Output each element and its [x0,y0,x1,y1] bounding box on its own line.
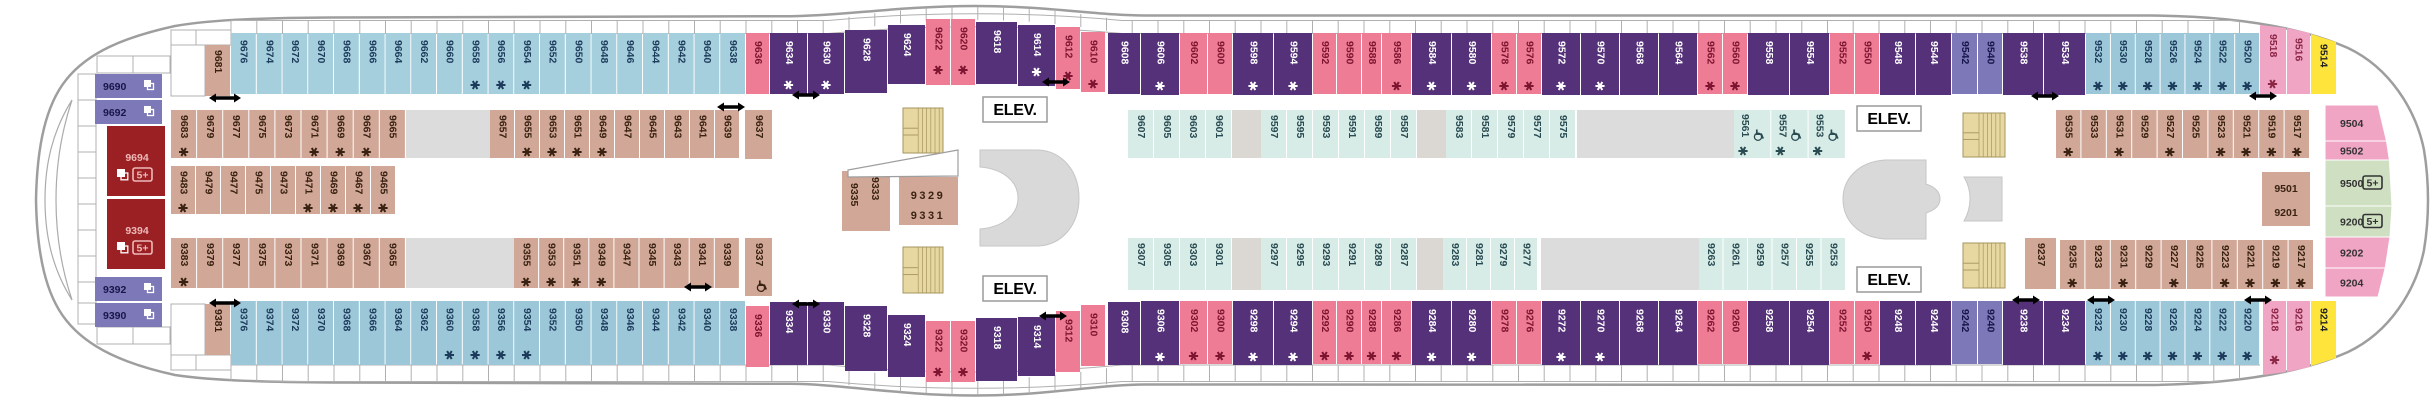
svg-text:9261: 9261 [1730,243,1742,267]
svg-text:9557: 9557 [1776,114,1788,138]
svg-text:9364: 9364 [392,308,404,332]
svg-text:9307: 9307 [1135,243,1147,267]
svg-text:9552: 9552 [1836,41,1848,65]
svg-text:9610: 9610 [1087,40,1099,64]
svg-text:9578: 9578 [1498,41,1510,65]
svg-text:9665: 9665 [387,115,399,139]
svg-text:9303: 9303 [1187,243,1199,267]
svg-text:9253: 9253 [1828,243,1840,267]
svg-text:9642: 9642 [675,40,687,64]
svg-text:9232: 9232 [2092,308,2104,332]
svg-text:9532: 9532 [2092,40,2104,64]
svg-text:9586: 9586 [1391,41,1403,65]
svg-text:9234: 9234 [2059,309,2071,333]
svg-text:9667: 9667 [361,115,373,139]
svg-text:9600: 9600 [1214,41,1226,65]
svg-text:9548: 9548 [1892,41,1904,65]
svg-text:9222: 9222 [2217,308,2229,332]
svg-text:9675: 9675 [256,115,268,139]
svg-text:9660: 9660 [444,40,456,64]
svg-text:9306: 9306 [1154,309,1166,333]
svg-text:9598: 9598 [1247,41,1259,65]
svg-text:9564: 9564 [1672,41,1684,65]
svg-text:9606: 9606 [1154,41,1166,65]
svg-text:9672: 9672 [289,40,301,64]
svg-text:9602: 9602 [1188,41,1200,65]
svg-text:9592: 9592 [1319,41,1331,65]
svg-text:9330: 9330 [820,310,832,334]
svg-text:9244: 9244 [1928,309,1940,333]
svg-text:9588: 9588 [1366,41,1378,65]
svg-text:9345: 9345 [646,243,658,267]
svg-text:9538: 9538 [2017,41,2029,65]
svg-text:9394: 9394 [125,225,149,237]
svg-text:9310: 9310 [1087,313,1099,337]
svg-text:9367: 9367 [361,243,373,267]
svg-text:9372: 9372 [289,308,301,332]
svg-text:9584: 9584 [1426,41,1438,65]
svg-text:9290: 9290 [1343,309,1355,333]
svg-text:9679: 9679 [204,115,216,139]
svg-text:9542: 9542 [1959,41,1971,65]
svg-text:9254: 9254 [1804,309,1816,333]
svg-text:9643: 9643 [671,115,683,139]
svg-text:9219: 9219 [2270,245,2282,269]
svg-text:9467: 9467 [352,171,364,195]
svg-text:9230: 9230 [2117,308,2129,332]
svg-text:9501: 9501 [2274,183,2298,195]
svg-text:9295: 9295 [1294,243,1306,267]
svg-text:9334: 9334 [783,310,795,334]
svg-text:9374: 9374 [263,308,275,332]
svg-text:9286: 9286 [1391,309,1403,333]
svg-text:9644: 9644 [650,40,662,64]
svg-text:9204: 9204 [2340,278,2364,290]
svg-text:9580: 9580 [1466,41,1478,65]
svg-text:9568: 9568 [1633,41,1645,65]
svg-text:9628: 9628 [860,38,872,62]
svg-text:9225: 9225 [2194,245,2206,269]
svg-text:9589: 9589 [1372,115,1384,139]
svg-text:9662: 9662 [418,40,430,64]
svg-text:9504: 9504 [2340,118,2364,130]
svg-text:9276: 9276 [1523,309,1535,333]
svg-text:9235: 9235 [2067,245,2079,269]
svg-text:9524: 9524 [2192,40,2204,64]
svg-text:9517: 9517 [2291,115,2303,139]
svg-text:9646: 9646 [624,40,636,64]
svg-text:9653: 9653 [546,115,558,139]
svg-text:9250: 9250 [1861,309,1873,333]
svg-text:9465: 9465 [377,171,389,195]
svg-text:9298: 9298 [1247,309,1259,333]
svg-text:9341: 9341 [696,243,708,267]
svg-text:9383: 9383 [178,243,190,267]
svg-text:9554: 9554 [1804,41,1816,65]
svg-text:ELEV.: ELEV. [1867,272,1910,289]
svg-text:9346: 9346 [624,308,636,332]
svg-text:9649: 9649 [596,115,608,139]
svg-text:9214: 9214 [2317,308,2329,332]
svg-text:9362: 9362 [418,308,430,332]
svg-text:9522: 9522 [2217,40,2229,64]
svg-text:9526: 9526 [2167,40,2179,64]
svg-text:9502: 9502 [2340,146,2364,158]
svg-text:9560: 9560 [1729,41,1741,65]
svg-text:9301: 9301 [1213,243,1225,267]
svg-text:9638: 9638 [727,40,739,64]
svg-text:9620: 9620 [957,27,969,51]
svg-text:9279: 9279 [1497,243,1509,267]
svg-text:9228: 9228 [2142,308,2154,332]
svg-text:9368: 9368 [341,308,353,332]
svg-text:5+: 5+ [137,243,149,255]
svg-text:9514: 9514 [2317,44,2329,68]
svg-text:9272: 9272 [1555,309,1567,333]
svg-text:9530: 9530 [2117,40,2129,64]
svg-text:9650: 9650 [572,40,584,64]
svg-text:9641: 9641 [696,115,708,139]
svg-text:9354: 9354 [521,308,533,332]
svg-text:9262: 9262 [1704,309,1716,333]
svg-text:9473: 9473 [277,171,289,195]
svg-text:9674: 9674 [263,40,275,64]
svg-text:9591: 9591 [1346,115,1358,139]
svg-text:9634: 9634 [783,41,795,65]
svg-text:5+: 5+ [2367,178,2379,190]
svg-text:9657: 9657 [496,115,508,139]
svg-text:9335: 9335 [848,183,860,207]
svg-text:9280: 9280 [1466,309,1478,333]
svg-text:9281: 9281 [1473,243,1485,267]
svg-text:9226: 9226 [2167,308,2179,332]
svg-text:ELEV.: ELEV. [1867,111,1910,128]
svg-text:9349: 9349 [596,243,608,267]
svg-text:9656: 9656 [495,40,507,64]
svg-text:9670: 9670 [315,40,327,64]
svg-text:9562: 9562 [1704,41,1716,65]
svg-text:9500: 9500 [2340,178,2364,190]
svg-text:9238: 9238 [2017,309,2029,333]
svg-text:9561: 9561 [1739,114,1751,138]
svg-text:9336: 9336 [752,314,764,338]
svg-text:9483: 9483 [177,171,189,195]
svg-text:9651: 9651 [571,115,583,139]
svg-text:9577: 9577 [1531,115,1543,139]
svg-text:9520: 9520 [2241,40,2253,64]
svg-text:9320: 9320 [957,329,969,353]
svg-text:9666: 9666 [366,40,378,64]
svg-text:9590: 9590 [1343,41,1355,65]
svg-text:9340: 9340 [701,308,713,332]
svg-text:9371: 9371 [308,243,320,267]
svg-text:9637: 9637 [753,115,765,139]
svg-text:9358: 9358 [469,308,481,332]
svg-text:9692: 9692 [103,107,127,119]
svg-text:9690: 9690 [103,81,127,93]
svg-text:9297: 9297 [1268,243,1280,267]
svg-text:9257: 9257 [1779,243,1791,267]
svg-text:9525: 9525 [2190,115,2202,139]
svg-text:9603: 9603 [1187,115,1199,139]
svg-text:9294: 9294 [1287,309,1299,333]
svg-text:9270: 9270 [1594,309,1606,333]
svg-text:9218: 9218 [2268,308,2280,332]
svg-text:9390: 9390 [103,310,127,322]
svg-text:9583: 9583 [1453,115,1465,139]
svg-text:9318: 9318 [991,326,1003,350]
svg-text:9260: 9260 [1729,309,1741,333]
svg-text:9677: 9677 [230,115,242,139]
svg-text:9614: 9614 [1031,33,1043,57]
svg-text:9202: 9202 [2340,248,2364,260]
svg-text:9231: 9231 [2117,245,2129,269]
svg-text:9255: 9255 [1803,243,1815,267]
svg-text:9654: 9654 [521,40,533,64]
svg-text:9308: 9308 [1118,310,1130,334]
svg-text:9518: 9518 [2267,34,2279,58]
svg-text:9373: 9373 [282,243,294,267]
svg-text:9353: 9353 [545,243,557,267]
svg-text:9587: 9587 [1398,115,1410,139]
svg-text:9344: 9344 [650,308,662,332]
svg-text:9519: 9519 [2266,115,2278,139]
svg-text:ELEV.: ELEV. [993,102,1036,119]
svg-text:9673: 9673 [282,115,294,139]
svg-text:9237: 9237 [2035,243,2047,267]
svg-text:9595: 9595 [1294,115,1306,139]
svg-text:9535: 9535 [2063,115,2075,139]
svg-text:9572: 9572 [1555,41,1567,65]
svg-text:9664: 9664 [392,40,404,64]
svg-text:9312: 9312 [1062,319,1074,343]
svg-text:9283: 9283 [1449,243,1461,267]
svg-text:9570: 9570 [1594,41,1606,65]
svg-text:5+: 5+ [137,170,149,182]
svg-text:9392: 9392 [103,284,127,296]
svg-text:9258: 9258 [1763,309,1775,333]
svg-text:9676: 9676 [238,40,250,64]
svg-text:9366: 9366 [366,308,378,332]
svg-text:9227: 9227 [2168,245,2180,269]
svg-text:9469: 9469 [327,171,339,195]
svg-text:9284: 9284 [1426,309,1438,333]
svg-text:9471: 9471 [302,171,314,195]
svg-text:9302: 9302 [1188,309,1200,333]
svg-text:9521: 9521 [2240,115,2252,139]
svg-text:9314: 9314 [1031,325,1043,349]
svg-text:9618: 9618 [991,30,1003,54]
svg-text:9475: 9475 [252,171,264,195]
svg-text:9263: 9263 [1705,243,1717,267]
svg-text:9300: 9300 [1214,309,1226,333]
svg-text:9516: 9516 [2292,38,2304,62]
svg-text:9636: 9636 [752,41,764,65]
svg-text:9477: 9477 [227,171,239,195]
svg-text:9351: 9351 [571,243,583,267]
svg-text:9550: 9550 [1861,41,1873,65]
svg-text:9534: 9534 [2059,41,2071,65]
svg-text:9331: 9331 [911,210,945,222]
svg-text:9579: 9579 [1505,115,1517,139]
svg-text:9338: 9338 [727,308,739,332]
svg-text:9594: 9594 [1287,41,1299,65]
svg-text:9324: 9324 [901,323,913,347]
svg-text:9288: 9288 [1366,309,1378,333]
svg-text:9259: 9259 [1754,243,1766,267]
svg-text:9624: 9624 [901,33,913,57]
svg-text:9365: 9365 [387,243,399,267]
svg-text:9607: 9607 [1135,115,1147,139]
svg-text:9671: 9671 [308,115,320,139]
svg-text:9252: 9252 [1836,309,1848,333]
svg-text:9669: 9669 [335,115,347,139]
svg-text:9523: 9523 [2215,115,2227,139]
svg-text:9220: 9220 [2241,308,2253,332]
svg-text:9694: 9694 [125,152,149,164]
svg-text:9601: 9601 [1213,115,1225,139]
svg-text:9322: 9322 [932,329,944,353]
svg-text:9612: 9612 [1062,35,1074,59]
svg-text:9342: 9342 [675,308,687,332]
svg-text:9540: 9540 [1984,41,1996,65]
svg-text:9355: 9355 [520,243,532,267]
svg-text:9544: 9544 [1928,41,1940,65]
svg-text:9533: 9533 [2088,115,2100,139]
svg-text:9529: 9529 [2139,115,2151,139]
svg-text:9293: 9293 [1320,243,1332,267]
svg-text:ELEV.: ELEV. [993,281,1036,298]
svg-text:9233: 9233 [2092,245,2104,269]
svg-text:5+: 5+ [2367,216,2379,228]
svg-text:9381: 9381 [212,309,224,333]
svg-text:9379: 9379 [204,243,216,267]
svg-text:9622: 9622 [932,27,944,51]
svg-text:9277: 9277 [1520,243,1532,267]
svg-text:9356: 9356 [495,308,507,332]
svg-text:9352: 9352 [547,308,559,332]
svg-text:9681: 9681 [212,50,224,74]
svg-text:9652: 9652 [547,40,559,64]
svg-text:9575: 9575 [1557,115,1569,139]
svg-text:9597: 9597 [1268,115,1280,139]
svg-text:9200: 9200 [2340,217,2364,229]
svg-text:9348: 9348 [598,308,610,332]
svg-text:9648: 9648 [598,40,610,64]
svg-text:9224: 9224 [2192,308,2204,332]
svg-text:9329: 9329 [911,190,945,202]
svg-text:9343: 9343 [671,243,683,267]
svg-text:9248: 9248 [1892,309,1904,333]
svg-text:9581: 9581 [1479,115,1491,139]
svg-text:9370: 9370 [315,308,327,332]
svg-text:9287: 9287 [1398,243,1410,267]
svg-text:9593: 9593 [1320,115,1332,139]
svg-text:9328: 9328 [860,314,872,338]
svg-text:9278: 9278 [1498,309,1510,333]
svg-text:9347: 9347 [621,243,633,267]
svg-text:9630: 9630 [820,41,832,65]
svg-text:9655: 9655 [521,115,533,139]
svg-text:9683: 9683 [178,115,190,139]
svg-text:9242: 9242 [1959,309,1971,333]
svg-text:9216: 9216 [2292,308,2304,332]
svg-text:9658: 9658 [469,40,481,64]
svg-text:9576: 9576 [1523,41,1535,65]
svg-text:9640: 9640 [701,40,713,64]
svg-text:9339: 9339 [721,243,733,267]
svg-text:9240: 9240 [1984,309,1996,333]
svg-text:9350: 9350 [572,308,584,332]
svg-text:9201: 9201 [2274,207,2298,219]
svg-text:9291: 9291 [1346,243,1358,267]
svg-text:9337: 9337 [753,243,765,267]
svg-text:9369: 9369 [335,243,347,267]
svg-text:9333: 9333 [869,177,881,201]
svg-text:9645: 9645 [646,115,658,139]
svg-text:9375: 9375 [256,243,268,267]
svg-text:9647: 9647 [621,115,633,139]
svg-text:9377: 9377 [230,243,242,267]
svg-text:9217: 9217 [2295,245,2307,269]
svg-text:9558: 9558 [1763,41,1775,65]
svg-text:9639: 9639 [721,115,733,139]
svg-text:9223: 9223 [2219,245,2231,269]
svg-text:9268: 9268 [1633,309,1645,333]
svg-text:9292: 9292 [1319,309,1331,333]
svg-text:9479: 9479 [202,171,214,195]
svg-text:9221: 9221 [2244,245,2256,269]
svg-text:9527: 9527 [2164,115,2176,139]
svg-text:9305: 9305 [1161,243,1173,267]
svg-text:9531: 9531 [2113,115,2125,139]
svg-text:9376: 9376 [238,308,250,332]
svg-text:9553: 9553 [1814,114,1826,138]
svg-text:9229: 9229 [2143,245,2155,269]
svg-text:9608: 9608 [1118,41,1130,65]
svg-text:9264: 9264 [1672,309,1684,333]
svg-text:9528: 9528 [2142,40,2154,64]
svg-text:9605: 9605 [1161,115,1173,139]
svg-text:9360: 9360 [444,308,456,332]
svg-text:9668: 9668 [341,40,353,64]
svg-text:9289: 9289 [1372,243,1384,267]
